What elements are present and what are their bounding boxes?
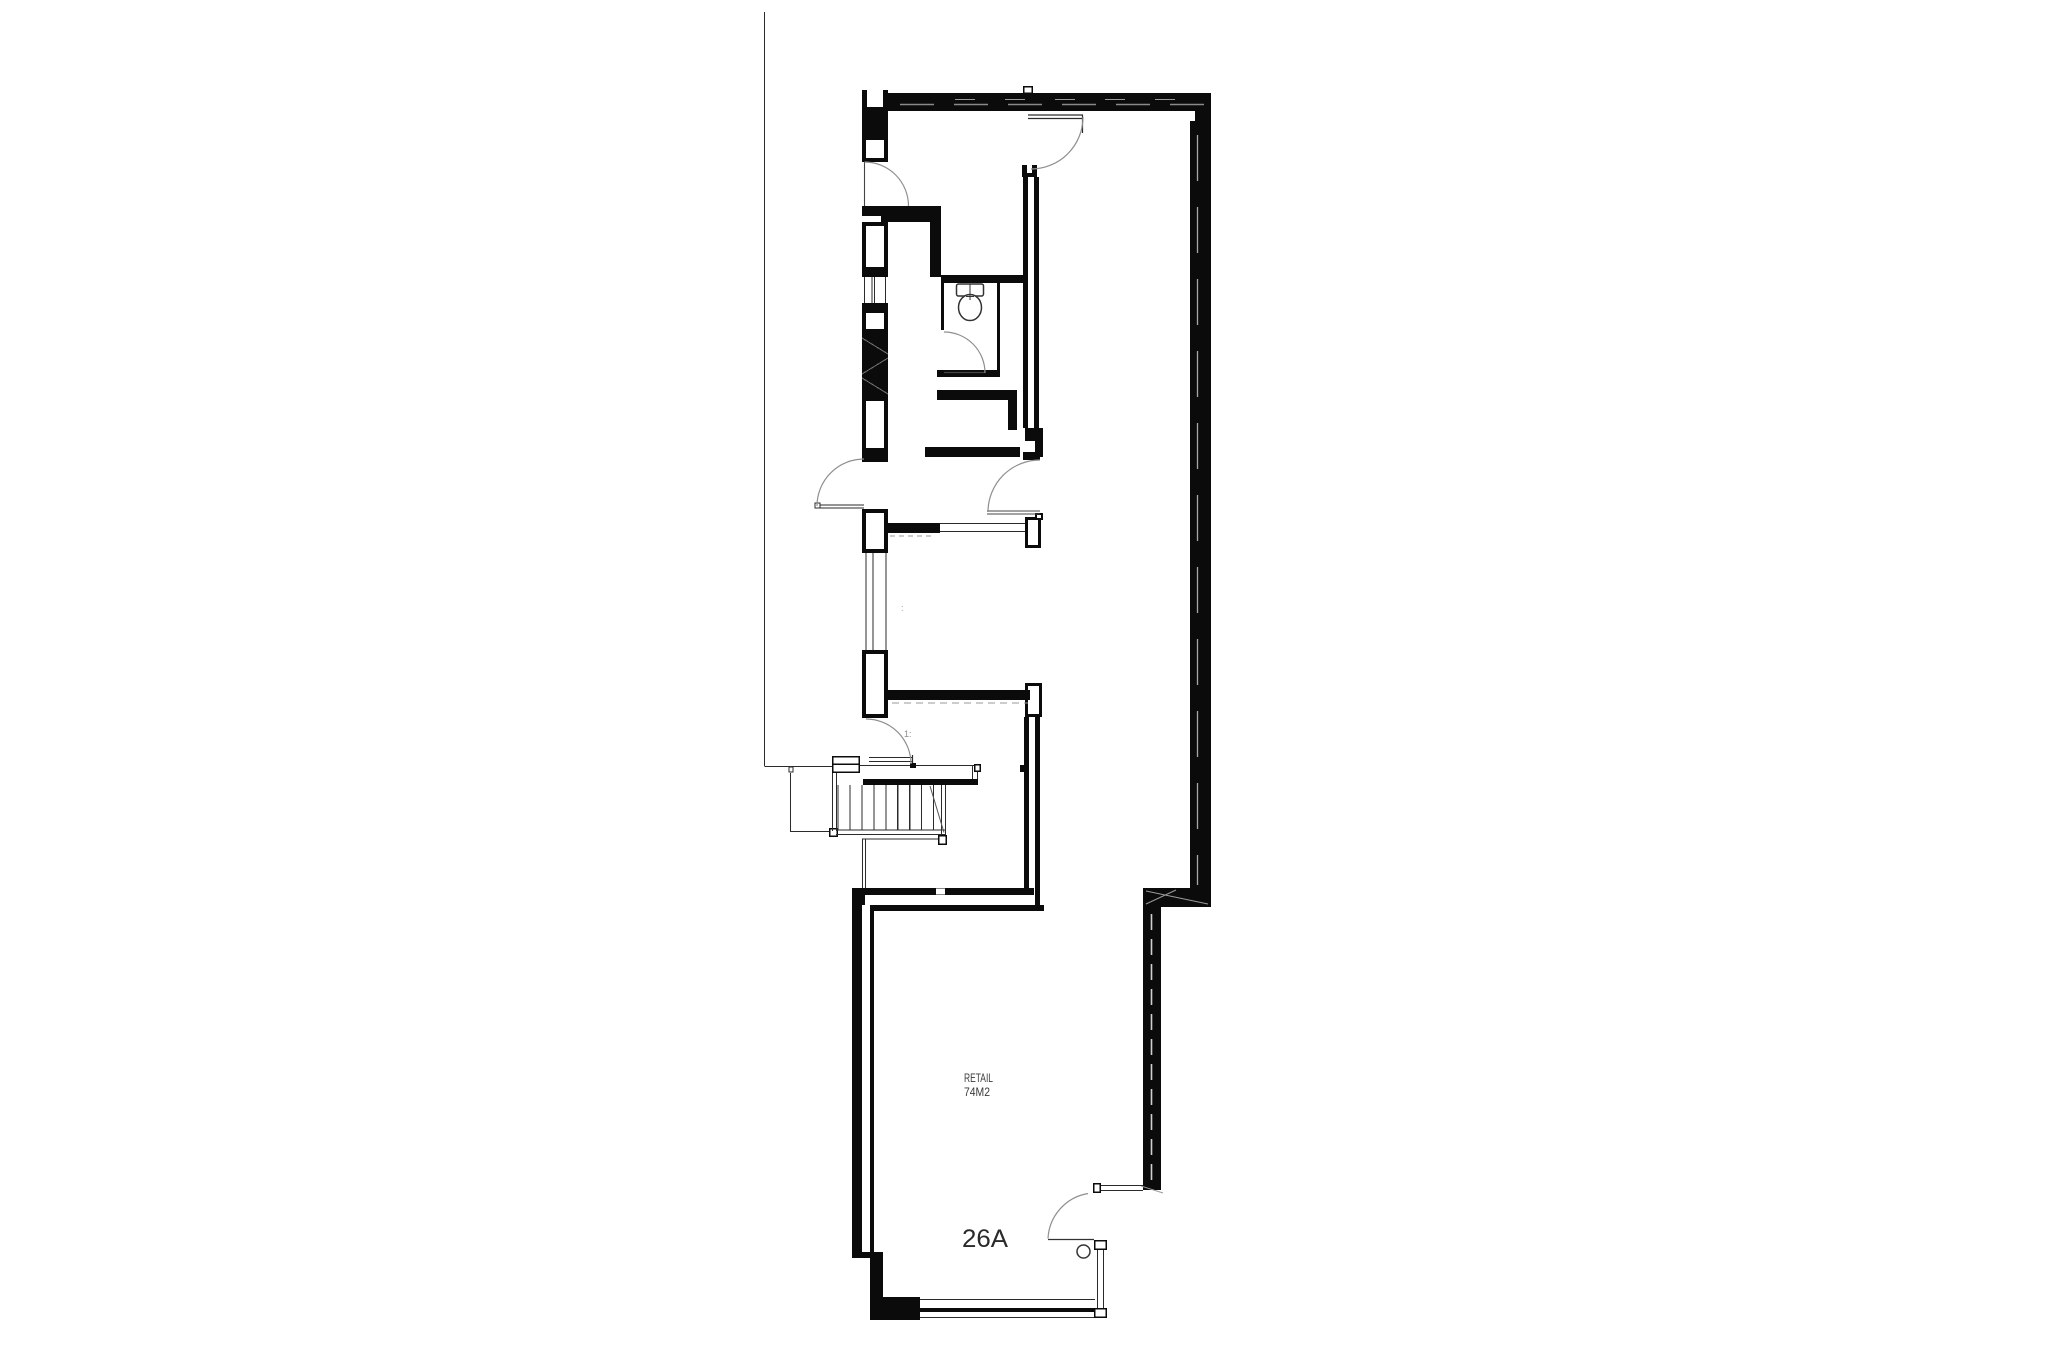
wall-end-cap xyxy=(974,764,981,772)
wall-end-cap xyxy=(1025,513,1043,548)
stair-hall-walls xyxy=(885,683,1042,911)
wall-block xyxy=(862,650,888,718)
stair-treads xyxy=(833,773,947,890)
hatched-wall-block xyxy=(862,333,888,397)
window-icon xyxy=(865,277,886,303)
room-area-label: 74M2 xyxy=(964,1085,990,1099)
corridor-east-wall xyxy=(1022,165,1043,460)
floor-plan-drawing: 1: : RETAIL 74M2 26A xyxy=(0,0,2070,1372)
toilet-door xyxy=(944,332,985,373)
window-icon xyxy=(866,553,886,650)
retail-entrance-door xyxy=(1048,1183,1143,1318)
vestibule-door-left xyxy=(865,162,909,206)
storefront-window xyxy=(920,1300,1095,1318)
wall-block xyxy=(862,509,888,553)
left-wall-column xyxy=(862,90,941,718)
door-swing-arc xyxy=(1048,1194,1088,1239)
unit-number-label: 26A xyxy=(962,1225,1008,1253)
door-jamb xyxy=(1094,1240,1107,1318)
side-exit-door xyxy=(815,459,864,508)
mid-partition xyxy=(888,513,1043,548)
stair-note-label: 1: xyxy=(904,729,912,739)
retail-walls xyxy=(852,895,920,1320)
handrail xyxy=(790,773,829,832)
wall-block xyxy=(862,136,888,162)
floor-plan-canvas: 1: : RETAIL 74M2 26A xyxy=(0,0,2070,1372)
mid-note-label: : xyxy=(901,603,904,613)
wall-block xyxy=(862,309,888,333)
property-line xyxy=(765,12,833,772)
wall-block xyxy=(862,222,888,271)
room-name-label: RETAIL xyxy=(964,1071,993,1085)
toilet-room xyxy=(925,216,1028,457)
annotations: 1: : xyxy=(901,603,912,739)
section-wall xyxy=(852,888,1044,911)
wall-hatch-marks xyxy=(900,100,1208,1194)
stair-bottom-cap xyxy=(938,835,947,845)
door-leaf-open xyxy=(1093,1183,1143,1193)
doors xyxy=(815,86,1083,768)
toilet-icon xyxy=(957,284,984,321)
stairs xyxy=(790,756,981,890)
stair-gate xyxy=(832,756,860,773)
corridor-door xyxy=(987,460,1040,514)
wall-block xyxy=(862,397,888,452)
stair-door xyxy=(866,719,916,768)
column-icon xyxy=(1077,1245,1090,1258)
room-labels: RETAIL 74M2 26A xyxy=(962,1071,1008,1253)
